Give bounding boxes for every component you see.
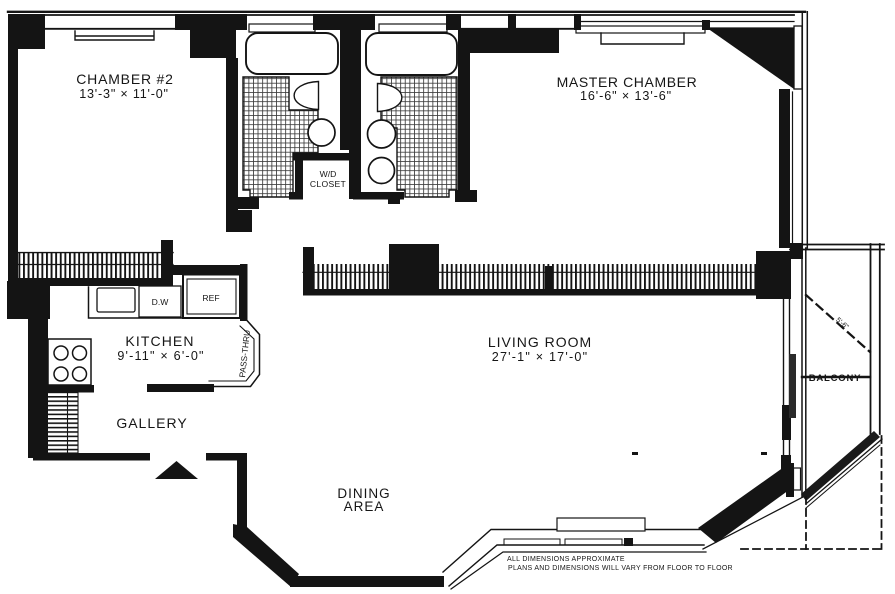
svg-text:16'-6" × 13'-6": 16'-6" × 13'-6" [580, 89, 672, 103]
svg-text:13'-3" × 11'-0": 13'-3" × 11'-0" [79, 87, 169, 101]
svg-text:REF: REF [202, 293, 219, 303]
svg-text:D.W: D.W [152, 297, 170, 307]
svg-text:AREA: AREA [344, 499, 385, 514]
svg-text:CHAMBER #2: CHAMBER #2 [76, 71, 173, 87]
svg-text:9'-11" × 6'-0": 9'-11" × 6'-0" [117, 349, 204, 363]
svg-text:BALCONY: BALCONY [809, 373, 862, 384]
svg-text:GALLERY: GALLERY [116, 415, 187, 431]
svg-text:PLANS AND DIMENSIONS WILL VARY: PLANS AND DIMENSIONS WILL VARY FROM FLOO… [508, 565, 733, 572]
svg-text:27'-1" × 17'-0": 27'-1" × 17'-0" [492, 350, 589, 364]
svg-text:MASTER CHAMBER: MASTER CHAMBER [557, 74, 698, 90]
svg-text:KITCHEN: KITCHEN [125, 333, 194, 349]
svg-text:CLOSET: CLOSET [310, 179, 347, 189]
svg-text:ALL DIMENSIONS APPROXIMATE: ALL DIMENSIONS APPROXIMATE [507, 556, 625, 563]
svg-text:W/D: W/D [320, 169, 337, 179]
svg-text:LIVING ROOM: LIVING ROOM [488, 334, 592, 350]
